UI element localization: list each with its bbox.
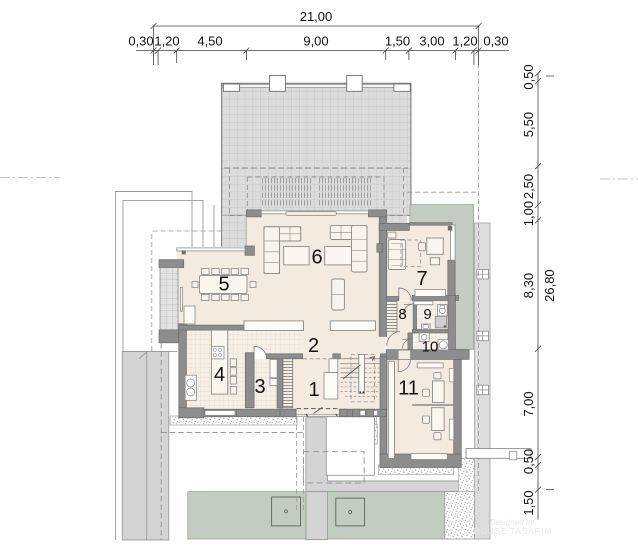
svg-text:1,00: 1,00: [521, 201, 536, 226]
svg-text:9,00: 9,00: [303, 34, 328, 49]
svg-text:5: 5: [218, 274, 229, 296]
svg-text:5,50: 5,50: [521, 112, 536, 137]
svg-text:0,50: 0,50: [521, 64, 536, 89]
svg-text:8,30: 8,30: [521, 273, 536, 298]
svg-text:4,50: 4,50: [197, 34, 222, 49]
svg-text:Designed by: Designed by: [490, 518, 535, 527]
svg-text:3: 3: [254, 376, 265, 398]
svg-text:1,50: 1,50: [521, 490, 536, 515]
svg-text:6: 6: [311, 247, 322, 269]
svg-text:26,80: 26,80: [542, 269, 557, 302]
svg-text:0,50: 0,50: [521, 449, 536, 474]
svg-text:1: 1: [308, 379, 319, 401]
svg-text:0,30: 0,30: [128, 34, 153, 49]
svg-text:3,00: 3,00: [419, 34, 444, 49]
svg-text:HOUSE TASARIM: HOUSE TASARIM: [474, 527, 553, 536]
svg-text:4: 4: [214, 364, 225, 386]
svg-text:8: 8: [398, 306, 406, 323]
svg-text:2: 2: [308, 335, 319, 357]
svg-text:1,50: 1,50: [385, 34, 410, 49]
svg-text:7: 7: [416, 268, 427, 290]
svg-text:21,00: 21,00: [300, 9, 333, 24]
svg-text:1,20: 1,20: [154, 34, 179, 49]
svg-text:10: 10: [422, 339, 439, 356]
svg-text:2,50: 2,50: [521, 174, 536, 199]
svg-text:11: 11: [398, 378, 419, 400]
svg-text:0,30: 0,30: [483, 34, 508, 49]
svg-text:7,00: 7,00: [521, 391, 536, 416]
svg-text:9: 9: [423, 306, 431, 323]
svg-text:1,20: 1,20: [452, 34, 477, 49]
